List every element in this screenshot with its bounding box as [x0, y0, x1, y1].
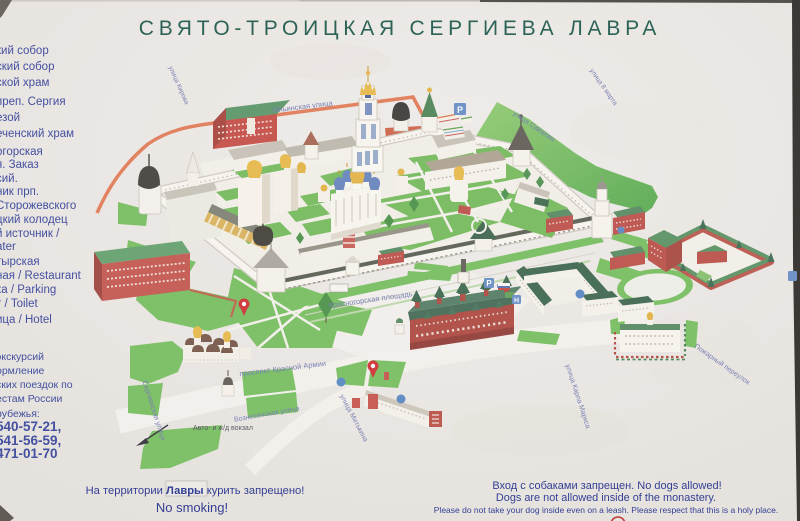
svg-text:еченский храм: еченский храм	[0, 128, 74, 140]
svg-text:ормление: ормление	[0, 365, 45, 377]
svg-text:ник прп.: ник прп.	[0, 186, 39, 198]
svg-text:ской храм: ской храм	[0, 77, 49, 89]
svg-text:экскурсий: экскурсий	[0, 351, 44, 363]
svg-text:ater: ater	[0, 241, 16, 253]
svg-text:540-57-21,: 540-57-21,	[0, 419, 61, 434]
svg-text:й источник /: й источник /	[0, 228, 60, 240]
svg-text:я. Заказ: я. Заказ	[0, 159, 39, 171]
svg-text:сий.: сий.	[0, 173, 18, 185]
svg-text:ка / Parking: ка / Parking	[0, 284, 56, 296]
svg-text:ица / Hotel: ица / Hotel	[0, 314, 52, 326]
svg-text:No smoking!: No smoking!	[156, 500, 228, 515]
svg-text:тырская: тырская	[0, 256, 40, 268]
svg-text:ский собор: ский собор	[0, 61, 54, 73]
svg-text:т / Toilet: т / Toilet	[0, 298, 39, 310]
svg-text:СВЯТО-ТРОИЦКАЯ СЕРГИЕВА ЛАВРА: СВЯТО-ТРОИЦКАЯ СЕРГИЕВА ЛАВРА	[139, 17, 661, 40]
svg-text:Dogs are not allowed inside of: Dogs are not allowed inside of the monas…	[496, 492, 716, 504]
svg-text:огорская: огорская	[0, 146, 43, 158]
svg-text:езой: езой	[0, 112, 20, 124]
svg-text:Please do not take your dog in: Please do not take your dog inside even …	[434, 505, 778, 515]
svg-text:471-01-70: 471-01-70	[0, 446, 58, 461]
svg-text:Вход с собаками запрещен. No d: Вход с собаками запрещен. No dogs allowe…	[492, 480, 721, 492]
svg-text:кий собор: кий собор	[0, 45, 49, 57]
svg-text:ная / Restaurant: ная / Restaurant	[0, 270, 82, 282]
svg-text:цкий колодец: цкий колодец	[0, 214, 68, 226]
svg-text:На территории Лавры курить зап: На территории Лавры курить запрещено!	[86, 485, 305, 497]
svg-text:естам России: естам России	[0, 393, 63, 405]
svg-text:ских поездок по: ских поездок по	[0, 379, 73, 391]
svg-text:Сторожевского: Сторожевского	[0, 200, 76, 212]
svg-text:преп. Сергия: преп. Сергия	[0, 96, 66, 108]
